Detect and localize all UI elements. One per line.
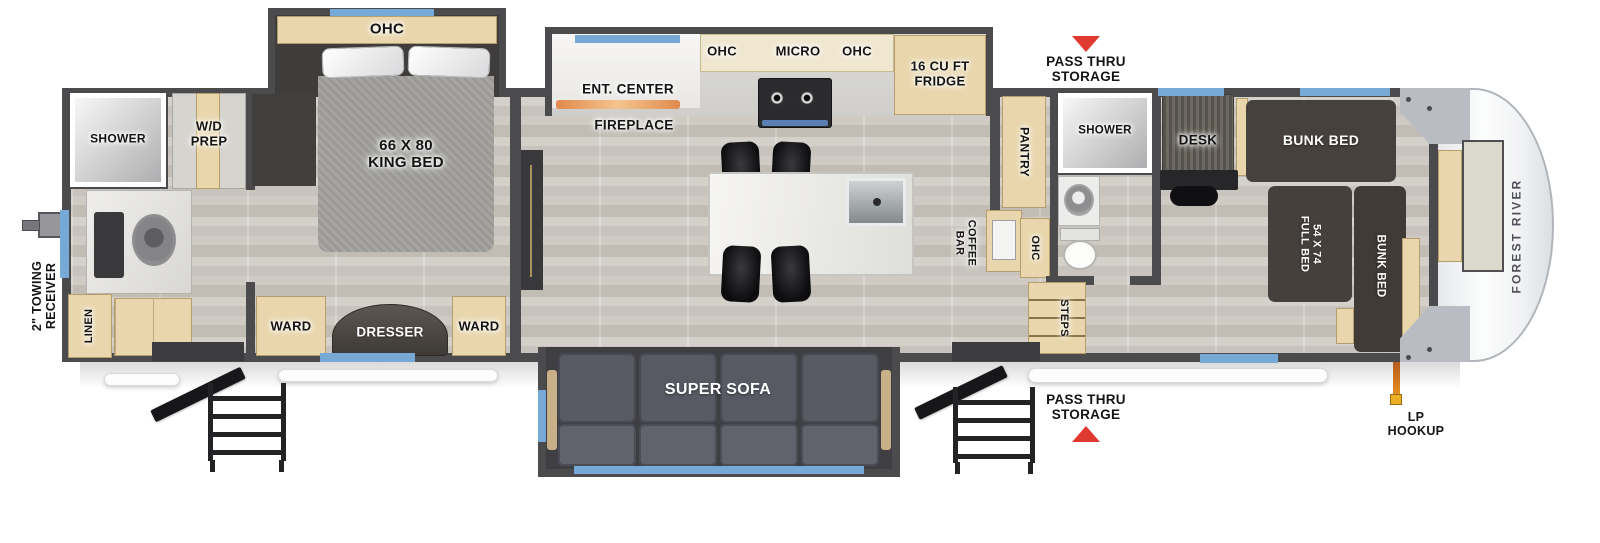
pillow xyxy=(322,46,405,79)
sofa-armrest xyxy=(547,370,557,450)
cap-screw xyxy=(1427,347,1432,352)
ward-right-label: WARD xyxy=(459,320,500,335)
towing-receiver-tube xyxy=(22,220,40,231)
sofa-seat-cushion xyxy=(558,424,636,466)
cap-screw xyxy=(1427,106,1432,111)
sliding-door xyxy=(521,150,543,290)
fireplace-label: FIREPLACE xyxy=(594,117,673,132)
brand-label: FOREST RIVER xyxy=(1510,178,1523,293)
ohc-left-label: OHC xyxy=(707,45,737,60)
interior-steps-label: STEPS xyxy=(1058,299,1070,337)
bunkroom-top-window xyxy=(1300,88,1390,96)
king-bed-label: 66 X 80 KING BED xyxy=(361,138,451,172)
micro-label: MICRO xyxy=(776,45,821,60)
ent-center-label: ENT. CENTER xyxy=(582,81,674,96)
skirt-panel xyxy=(104,373,180,386)
front-wardrobe xyxy=(1438,150,1462,262)
pass-thru-storage-top-label: PASS THRU STORAGE xyxy=(1036,54,1136,84)
wall-kitchen-right xyxy=(990,88,1000,210)
pass-thru-storage-bottom-label: PASS THRU STORAGE xyxy=(1036,392,1136,422)
step-leg xyxy=(279,460,284,472)
stove-burner xyxy=(769,90,785,106)
arrow-down-icon xyxy=(1072,36,1100,52)
coffee-machine xyxy=(992,220,1016,260)
front-cap-storage xyxy=(1462,140,1504,272)
stove-front-accent xyxy=(762,120,828,126)
dresser-label: DRESSER xyxy=(356,324,423,339)
sofa-back-cushion xyxy=(558,353,636,423)
ohc-right-label: OHC xyxy=(842,45,872,60)
sofa-armrest xyxy=(881,370,891,450)
fireplace-strip xyxy=(556,100,680,109)
lp-hookup-label: LP HOOKUP xyxy=(1384,410,1448,438)
towing-receiver-label: 2" TOWING RECEIVER xyxy=(30,253,58,339)
sliding-door-track xyxy=(530,165,532,277)
sofa-seat-cushion xyxy=(801,424,879,466)
rear-entry-mat xyxy=(152,342,244,361)
island-stool xyxy=(721,245,762,303)
sofa-slide-window-bottom xyxy=(574,466,864,474)
main-entry-steps xyxy=(953,387,1035,463)
island-stool xyxy=(771,245,812,303)
rv-floorplan: 2" TOWING RECEIVER FOREST RIVER LP HOOKU… xyxy=(0,0,1600,543)
toilet-bowl xyxy=(1063,240,1097,270)
sofa-slide-window-left xyxy=(538,390,546,442)
island-faucet xyxy=(873,198,881,206)
sofa-seat-cushion xyxy=(720,424,798,466)
desk-label: DESK xyxy=(1179,132,1218,147)
bedroom-closet-dark xyxy=(252,94,316,186)
wall-midbath-inner xyxy=(1050,92,1058,278)
step-leg xyxy=(955,462,960,474)
sofa-back-cushion xyxy=(801,353,879,423)
sofa-seat-cushion xyxy=(639,424,717,466)
pantry-label: PANTRY xyxy=(1017,127,1030,177)
vanity-mirror xyxy=(94,212,124,278)
linen-label: LINEN xyxy=(83,309,95,344)
bunkroom-small-cabinet xyxy=(1336,308,1354,344)
rear-shower-label: SHOWER xyxy=(90,132,146,145)
desk-chair xyxy=(1170,186,1218,206)
bedroom-bottom-window xyxy=(320,353,415,362)
lp-pipe xyxy=(1393,362,1400,396)
wall-bedroom-divider xyxy=(510,88,521,362)
wd-prep-label: W/D PREP xyxy=(184,119,234,148)
bedroom-ohc-label: OHC xyxy=(370,22,404,39)
cap-screw xyxy=(1406,355,1411,360)
bunk-bed-front-label: BUNK BED xyxy=(1374,234,1387,297)
midbath-sink xyxy=(1064,184,1094,216)
skirt-panel xyxy=(278,369,498,382)
stove-burner xyxy=(799,90,815,106)
pillow xyxy=(408,46,491,79)
cap-screw xyxy=(1406,97,1411,102)
step-leg xyxy=(1028,462,1033,474)
ward-left-label: WARD xyxy=(271,320,312,335)
kitchen-slide-window xyxy=(575,35,680,43)
bunkroom-bottom-window xyxy=(1200,354,1278,363)
super-sofa-label: SUPER SOFA xyxy=(665,381,771,399)
main-entry-mat xyxy=(952,342,1040,361)
ent-center-cabinet xyxy=(552,34,700,108)
arrow-up-icon xyxy=(1072,426,1100,442)
bunk-bed-top-label: BUNK BED xyxy=(1283,133,1359,149)
rear-entry-steps xyxy=(208,383,286,461)
mid-shower-label: SHOWER xyxy=(1078,125,1132,138)
midbath-ohc-label: OHC xyxy=(1029,235,1041,260)
coffee-bar-label: COFFEE BAR xyxy=(953,216,978,270)
wall-rearbath-bottom xyxy=(246,282,255,362)
bunkroom-top-window xyxy=(1158,88,1224,96)
rear-wall-window xyxy=(60,210,69,278)
full-bed-label: 54 X 74 FULL BED xyxy=(1298,214,1323,274)
vanity-sink xyxy=(132,214,176,266)
skirt-panel xyxy=(1028,368,1328,383)
step-leg xyxy=(210,460,215,472)
lp-connector xyxy=(1390,394,1402,405)
fridge-label: 16 CU FT FRIDGE xyxy=(903,59,977,88)
